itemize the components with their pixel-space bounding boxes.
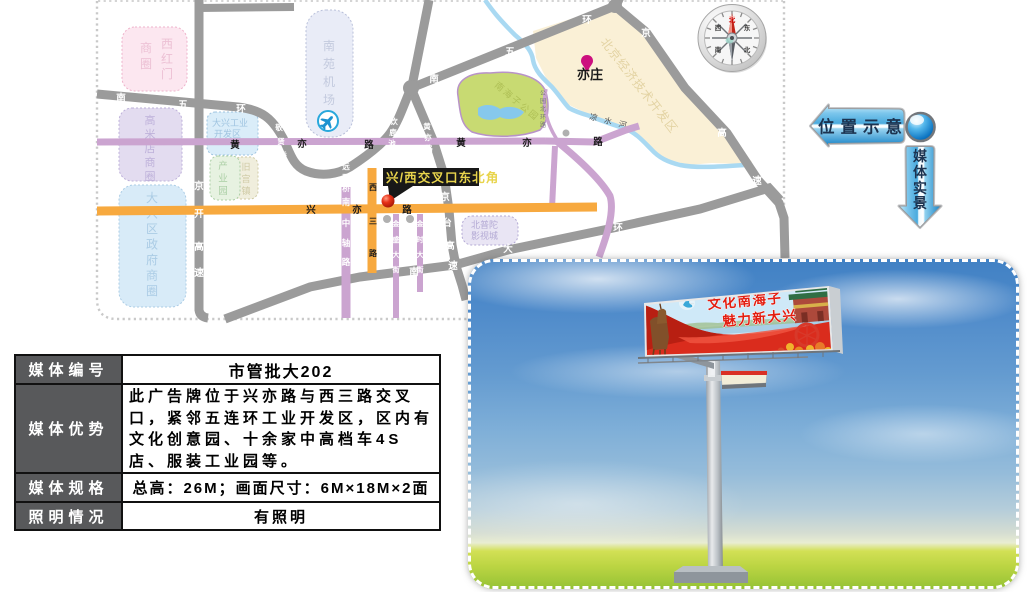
svg-text:盛: 盛: [393, 235, 400, 244]
svg-text:亦: 亦: [297, 138, 307, 150]
svg-text:路: 路: [540, 121, 546, 129]
svg-text:区: 区: [146, 222, 158, 236]
svg-text:五: 五: [505, 47, 515, 58]
svg-text:高: 高: [145, 113, 156, 127]
svg-text:南: 南: [116, 92, 126, 104]
svg-text:大兴工业: 大兴工业: [212, 117, 248, 128]
svg-text:兴: 兴: [306, 204, 316, 216]
svg-text:黄: 黄: [456, 137, 466, 149]
svg-text:路: 路: [425, 143, 433, 153]
svg-text:速: 速: [752, 175, 762, 187]
svg-text:园: 园: [540, 98, 546, 105]
svg-text:园: 园: [218, 186, 228, 197]
svg-text:府: 府: [146, 252, 158, 267]
svg-text:高: 高: [717, 127, 727, 139]
svg-text:路: 路: [342, 257, 351, 267]
svg-text:西: 西: [369, 183, 377, 192]
svg-text:黄: 黄: [423, 121, 431, 131]
svg-text:三: 三: [369, 217, 377, 226]
svg-text:圈: 圈: [140, 57, 152, 71]
svg-text:红: 红: [161, 51, 173, 66]
svg-text:路: 路: [364, 139, 374, 151]
svg-text:五: 五: [178, 100, 188, 111]
svg-text:敬: 敬: [274, 122, 283, 132]
svg-text:桥: 桥: [387, 149, 395, 159]
svg-text:南: 南: [429, 73, 439, 85]
svg-text:环: 环: [236, 104, 246, 115]
svg-text:街: 街: [392, 265, 400, 274]
svg-text:街: 街: [416, 265, 424, 274]
svg-text:商: 商: [145, 155, 156, 169]
svg-text:饮: 饮: [389, 116, 398, 126]
svg-text:南: 南: [342, 197, 351, 207]
svg-text:高: 高: [445, 240, 455, 252]
svg-text:路: 路: [369, 248, 378, 258]
svg-text:黄: 黄: [230, 139, 240, 151]
svg-text:圈: 圈: [145, 170, 156, 183]
svg-text:西: 西: [342, 173, 350, 182]
svg-text:大: 大: [393, 250, 400, 259]
svg-text:台: 台: [442, 217, 452, 229]
svg-text:京: 京: [641, 27, 651, 39]
svg-text:京: 京: [194, 180, 204, 192]
svg-text:开发区: 开发区: [214, 128, 241, 139]
svg-text:南: 南: [715, 45, 722, 54]
svg-text:大: 大: [146, 191, 158, 205]
svg-text:门: 门: [161, 66, 173, 81]
svg-text:南: 南: [323, 38, 335, 53]
svg-text:开: 开: [194, 209, 204, 220]
svg-text:环: 环: [540, 114, 546, 121]
svg-text:政: 政: [146, 238, 158, 252]
svg-text:速: 速: [194, 267, 204, 279]
svg-text:兴/西交叉口东北角: 兴/西交叉口东北角: [386, 170, 499, 185]
svg-text:京: 京: [440, 191, 450, 203]
svg-text:亦: 亦: [424, 132, 432, 142]
svg-text:桥: 桥: [426, 154, 434, 164]
svg-text:实: 实: [913, 180, 927, 196]
svg-text:金: 金: [416, 219, 425, 228]
svg-text:场: 场: [323, 93, 335, 107]
svg-text:桥: 桥: [279, 150, 287, 160]
svg-text:东: 东: [744, 23, 751, 32]
svg-text:路: 路: [402, 204, 412, 216]
svg-text:亦: 亦: [352, 204, 362, 216]
svg-text:西: 西: [161, 37, 173, 51]
svg-text:产: 产: [218, 160, 228, 172]
svg-text:旧: 旧: [241, 162, 250, 172]
svg-text:金: 金: [392, 219, 401, 228]
svg-text:桥: 桥: [342, 183, 350, 193]
svg-text:致: 致: [342, 150, 350, 160]
svg-text:大: 大: [417, 250, 424, 259]
svg-text:媒: 媒: [912, 148, 928, 164]
svg-text:北: 北: [744, 45, 751, 54]
svg-text:北: 北: [540, 105, 546, 113]
svg-text:西: 西: [715, 24, 722, 32]
svg-text:速: 速: [448, 260, 458, 272]
svg-text:中: 中: [342, 218, 351, 228]
svg-text:宫: 宫: [241, 173, 250, 184]
svg-text:北普陀: 北普陀: [471, 219, 498, 230]
svg-text:环: 环: [582, 15, 592, 26]
svg-text:商: 商: [140, 40, 152, 55]
svg-text:时: 时: [417, 235, 424, 244]
svg-text:鹿: 鹿: [389, 127, 397, 137]
svg-text:池: 池: [388, 138, 396, 148]
svg-text:机: 机: [323, 75, 335, 89]
svg-text:景: 景: [913, 195, 927, 211]
svg-text:影视城: 影视城: [471, 230, 498, 241]
svg-text:大: 大: [503, 243, 513, 255]
svg-text:贤: 贤: [277, 137, 285, 146]
svg-text:镇: 镇: [241, 185, 250, 196]
svg-text:亦: 亦: [522, 137, 532, 149]
svg-text:轴: 轴: [342, 238, 351, 248]
svg-text:亦庄: 亦庄: [577, 67, 603, 82]
svg-text:北: 北: [729, 15, 736, 24]
svg-text:业: 业: [218, 174, 228, 185]
svg-text:路: 路: [593, 136, 603, 148]
svg-text:环: 环: [613, 223, 623, 234]
svg-text:圈: 圈: [146, 284, 158, 298]
svg-text:苑: 苑: [323, 57, 335, 71]
svg-text:体: 体: [913, 164, 928, 180]
svg-text:远: 远: [342, 162, 350, 171]
svg-text:公: 公: [540, 90, 546, 97]
svg-text:商: 商: [146, 268, 158, 283]
svg-text:高: 高: [194, 241, 204, 253]
